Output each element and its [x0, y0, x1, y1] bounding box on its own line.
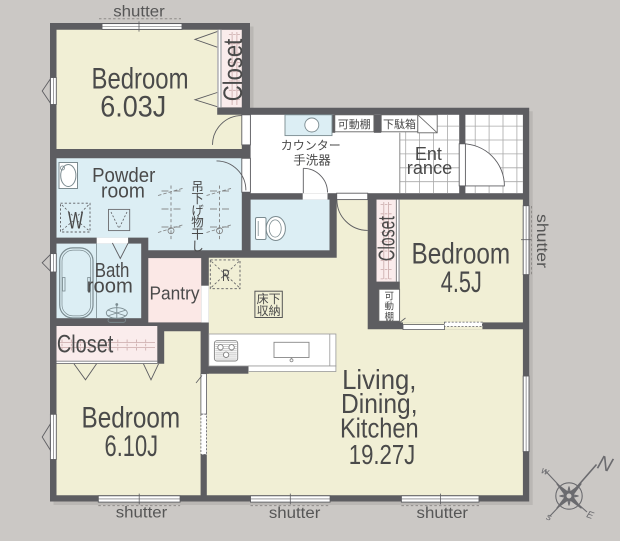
- svg-text:shutter: shutter: [533, 214, 550, 268]
- svg-text:room: room: [87, 275, 133, 297]
- svg-text:rance: rance: [407, 158, 452, 178]
- svg-text:4.5J: 4.5J: [441, 266, 482, 299]
- svg-text:R: R: [222, 266, 230, 285]
- svg-text:カウンター: カウンター: [281, 139, 341, 153]
- svg-text:下駄箱: 下駄箱: [383, 117, 416, 131]
- svg-text:room: room: [101, 179, 145, 202]
- svg-text:6.03J: 6.03J: [100, 91, 166, 124]
- svg-text:し: し: [191, 240, 204, 254]
- svg-text:手洗器: 手洗器: [293, 154, 331, 168]
- svg-text:shutter: shutter: [417, 505, 469, 522]
- svg-text:Pantry: Pantry: [150, 283, 200, 303]
- svg-text:可動棚: 可動棚: [338, 117, 371, 131]
- svg-text:Closet: Closet: [218, 38, 248, 101]
- svg-text:shutter: shutter: [113, 4, 165, 21]
- svg-text:shutter: shutter: [269, 505, 321, 522]
- svg-text:棚: 棚: [384, 311, 394, 323]
- svg-text:6.10J: 6.10J: [105, 430, 159, 463]
- svg-text:19.27J: 19.27J: [349, 439, 416, 470]
- svg-text:W: W: [68, 208, 84, 235]
- svg-text:収納: 収納: [257, 304, 281, 318]
- svg-text:shutter: shutter: [116, 504, 168, 521]
- svg-text:Closet: Closet: [373, 216, 399, 261]
- svg-text:Closet: Closet: [57, 331, 113, 359]
